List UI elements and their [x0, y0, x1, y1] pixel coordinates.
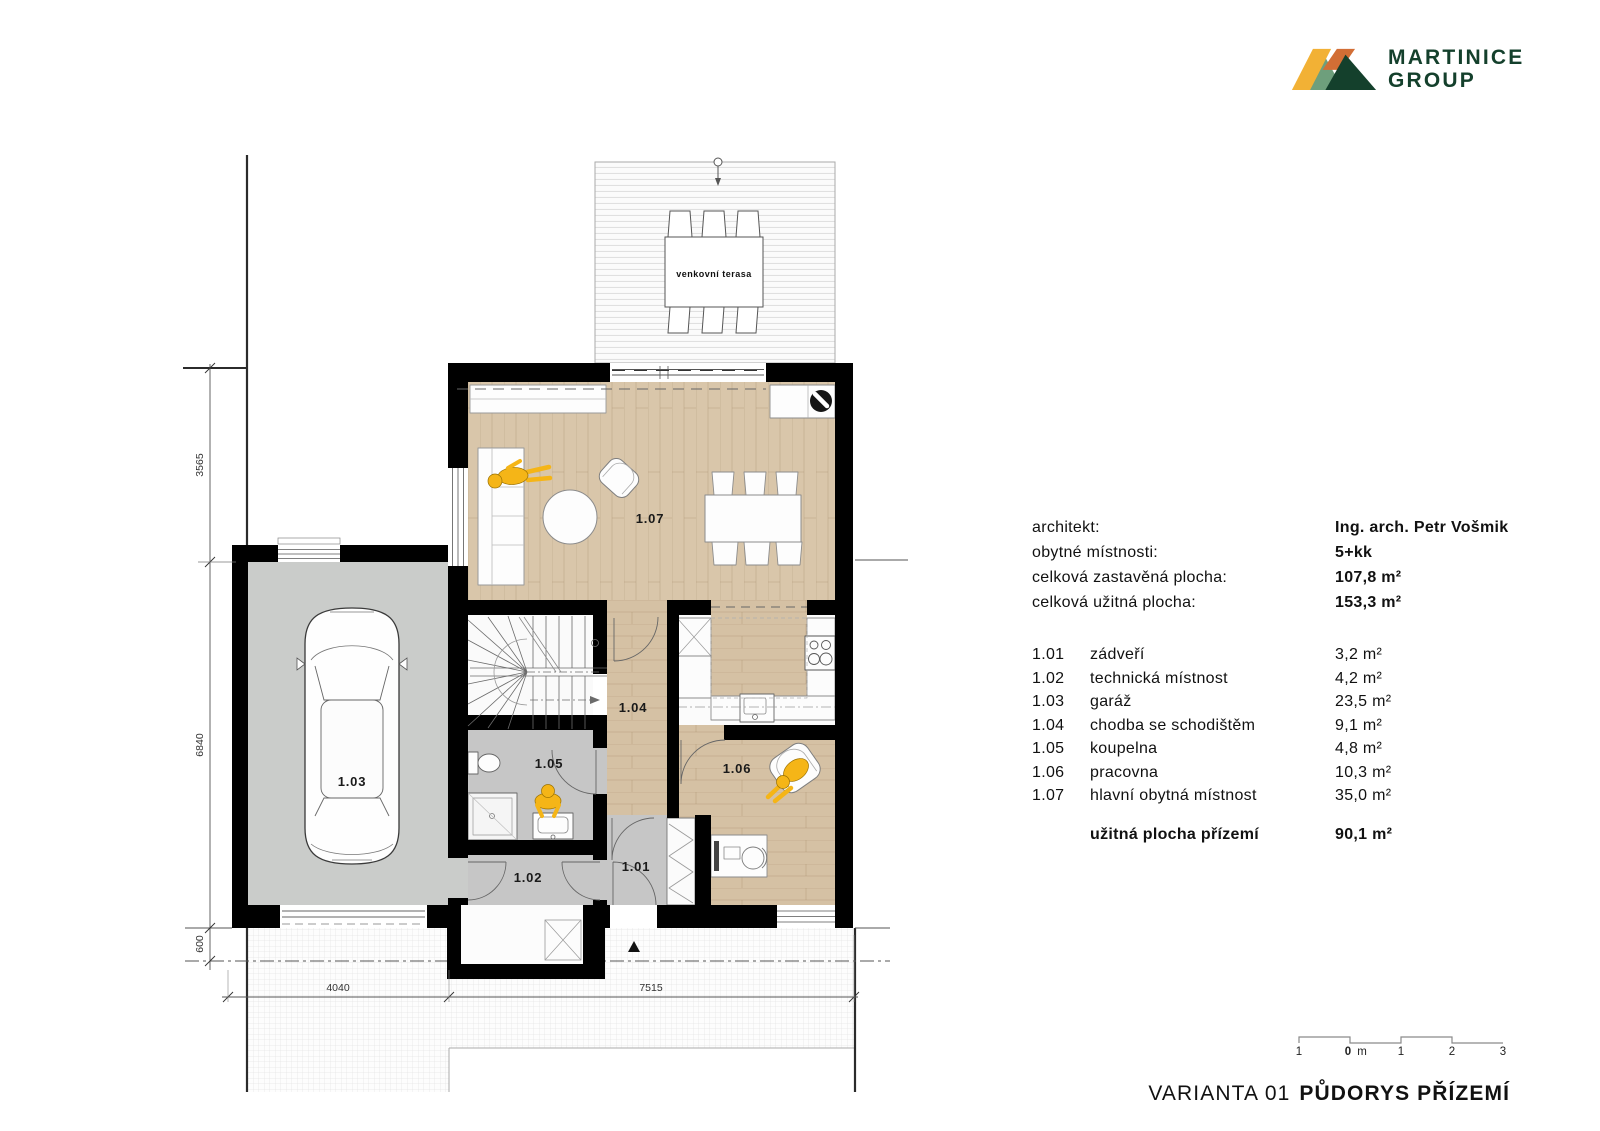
- info-label: celková zastavěná plocha:: [1032, 569, 1227, 587]
- dim-4040: 4040: [326, 982, 350, 994]
- info-value: Ing. arch. Petr Vošmik: [1335, 519, 1508, 537]
- scale-label: 3: [1500, 1046, 1506, 1058]
- project-info: architekt: Ing. arch. Petr Vošmik obytné…: [1032, 519, 1510, 619]
- room-row: 1.07 hlavní obytná místnost 35,0 m²: [1032, 787, 1510, 811]
- room-number: 1.05: [1032, 740, 1064, 758]
- room-row: 1.02 technická místnost 4,2 m²: [1032, 670, 1510, 694]
- title-name: PŮDORYS PŘÍZEMÍ: [1299, 1082, 1510, 1105]
- room-label-living: 1.07: [636, 511, 665, 526]
- logo-wordmark: MARTINICE GROUP: [1388, 46, 1524, 92]
- info-label: celková užitná plocha:: [1032, 594, 1196, 612]
- room-name: garáž: [1090, 693, 1132, 711]
- info-row: obytné místnosti: 5+kk: [1032, 544, 1510, 569]
- room-label-garage: 1.03: [338, 774, 367, 789]
- window-office: [777, 905, 835, 928]
- room-number: 1.02: [1032, 670, 1064, 688]
- scale-label: 1: [1398, 1046, 1404, 1058]
- room-area: 9,1 m²: [1335, 717, 1382, 735]
- stove-icon: [805, 636, 835, 670]
- summary-row: užitná plocha přízemí 90,1 m²: [1032, 826, 1510, 850]
- dining-chairs-top: [712, 472, 798, 495]
- monitor-icon: [714, 841, 719, 871]
- office-chair: [742, 847, 764, 869]
- scale-label: 2: [1449, 1046, 1455, 1058]
- room-row: 1.05 koupelna 4,8 m²: [1032, 740, 1510, 764]
- desk: [711, 835, 767, 877]
- room-number: 1.07: [1032, 787, 1064, 805]
- scale-label-unit: m: [1357, 1046, 1367, 1058]
- room-label-bath: 1.05: [535, 756, 564, 771]
- coffee-table: [543, 490, 597, 544]
- room-area: 23,5 m²: [1335, 693, 1391, 711]
- room-area: 35,0 m²: [1335, 787, 1391, 805]
- info-label: obytné místnosti:: [1032, 544, 1158, 562]
- scale-label-zero: 0: [1345, 1046, 1351, 1058]
- room-row: 1.04 chodba se schodištěm 9,1 m²: [1032, 717, 1510, 741]
- dim-3565: 3565: [194, 453, 206, 477]
- dining-table: [705, 495, 801, 542]
- window-garage: [278, 538, 340, 562]
- room-name: zádveří: [1090, 646, 1145, 664]
- room-name: chodba se schodištěm: [1090, 717, 1255, 735]
- summary-label: užitná plocha přízemí: [1090, 826, 1259, 844]
- logo: MARTINICE GROUP: [1290, 44, 1524, 92]
- doormat: [545, 920, 581, 960]
- terrace-chair-row-top: [668, 211, 760, 237]
- window-west: [448, 468, 468, 566]
- scale-label: 1: [1296, 1046, 1302, 1058]
- toilet-icon: [468, 752, 500, 774]
- car: [297, 608, 407, 864]
- room-area: 3,2 m²: [1335, 646, 1382, 664]
- logo-line1: MARTINICE: [1388, 46, 1524, 69]
- dining-chairs-bottom: [712, 542, 802, 565]
- logo-line2: GROUP: [1388, 69, 1524, 92]
- dim-6840: 6840: [194, 733, 206, 757]
- room-row: 1.06 pracovna 10,3 m²: [1032, 764, 1510, 788]
- shower: [468, 793, 517, 840]
- logo-icon: [1290, 44, 1378, 92]
- dim-600: 600: [194, 935, 206, 953]
- info-value: 153,3 m²: [1335, 594, 1401, 612]
- room-label-entry: 1.01: [622, 859, 651, 874]
- kitchen-floor: [711, 600, 807, 698]
- scale-bar: 1 0 m 1 2 3: [1296, 1032, 1508, 1062]
- info-row: architekt: Ing. arch. Petr Vošmik: [1032, 519, 1510, 544]
- info-row: celková užitná plocha: 153,3 m²: [1032, 594, 1510, 619]
- dim-7515: 7515: [639, 982, 663, 994]
- terrace-chair-row-bottom: [668, 307, 758, 333]
- room-schedule: 1.01 zádveří 3,2 m² 1.02 technická místn…: [1032, 646, 1510, 850]
- room-number: 1.06: [1032, 764, 1064, 782]
- info-value: 107,8 m²: [1335, 569, 1401, 587]
- terrace-label: venkovní terasa: [676, 269, 752, 279]
- room-number: 1.04: [1032, 717, 1064, 735]
- room-name: hlavní obytná místnost: [1090, 787, 1257, 805]
- drawing-title: VARIANTA 01PŮDORYS PŘÍZEMÍ: [1148, 1082, 1510, 1106]
- room-area: 4,8 m²: [1335, 740, 1382, 758]
- info-row: celková zastavěná plocha: 107,8 m²: [1032, 569, 1510, 594]
- wardrobe: [667, 818, 695, 905]
- info-value: 5+kk: [1335, 544, 1372, 562]
- room-number: 1.03: [1032, 693, 1064, 711]
- room-row: 1.01 zádveří 3,2 m²: [1032, 646, 1510, 670]
- scale-bar-graphic: [1296, 1032, 1508, 1046]
- room-label-utility: 1.02: [514, 870, 543, 885]
- title-variant: VARIANTA 01: [1148, 1082, 1290, 1105]
- garage-door: [280, 905, 427, 928]
- room-name: koupelna: [1090, 740, 1157, 758]
- info-label: architekt:: [1032, 519, 1100, 537]
- terrace: venkovní terasa: [595, 158, 835, 363]
- sliding-door-terrace: [610, 363, 766, 382]
- room-area: 10,3 m²: [1335, 764, 1391, 782]
- room-area: 4,2 m²: [1335, 670, 1382, 688]
- summary-value: 90,1 m²: [1335, 826, 1392, 844]
- room-name: pracovna: [1090, 764, 1158, 782]
- room-row: 1.03 garáž 23,5 m²: [1032, 693, 1510, 717]
- room-name: technická místnost: [1090, 670, 1228, 688]
- room-label-office: 1.06: [723, 761, 752, 776]
- room-label-corridor: 1.04: [619, 700, 648, 715]
- floor-plan-drawing: venkovní terasa: [165, 140, 925, 1100]
- room-number: 1.01: [1032, 646, 1064, 664]
